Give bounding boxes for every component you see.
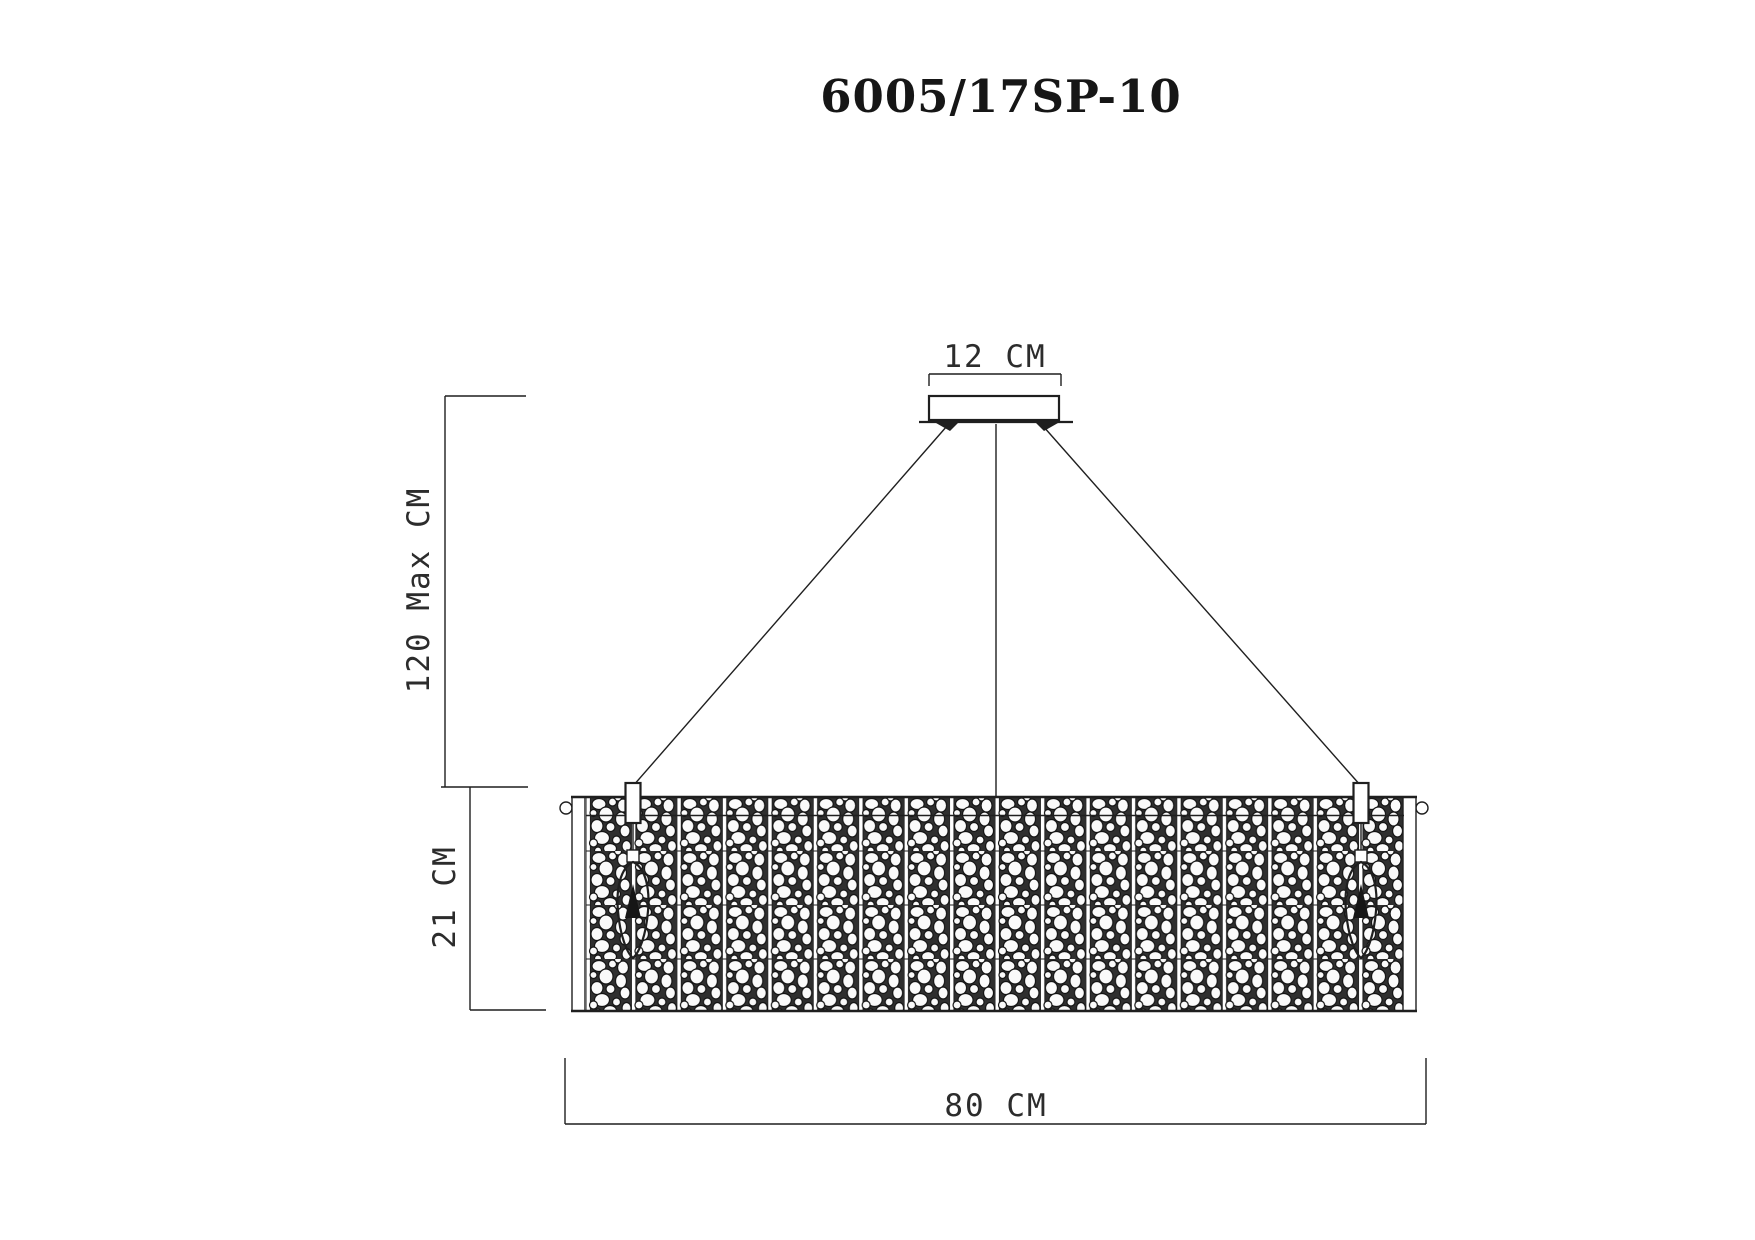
suspension-wires: [633, 424, 1361, 797]
suspension-height-dimension-line: [441, 396, 528, 787]
body-height-dimension: 21 CM: [427, 787, 546, 1010]
canopy-group: 12 CM: [919, 339, 1073, 431]
right-lamp-socket: [1355, 850, 1367, 862]
right-end-bar: [1403, 797, 1416, 1011]
technical-drawing: 6005/17SP-10 12 CM: [0, 0, 1755, 1240]
body-width-dimension-label: 80 CM: [944, 1088, 1047, 1124]
chandelier-body: [560, 783, 1428, 1011]
product-code-title: 6005/17SP-10: [820, 70, 1181, 123]
body-width-dimension: 80 CM: [565, 1058, 1426, 1124]
right-end-knob: [1416, 802, 1428, 814]
canopy-width-dimension-line: [929, 374, 1061, 386]
suspension-height-dimension-label: 120 Max CM: [401, 487, 437, 694]
crystal-mesh-panels: [586, 797, 1404, 1011]
suspension-height-dimension: 120 Max CM: [401, 396, 528, 787]
left-end-bar: [572, 797, 585, 1011]
canopy-width-dimension-label: 12 CM: [943, 339, 1046, 375]
left-suspension-wire: [633, 426, 947, 786]
right-wire-bracket: [1354, 783, 1369, 823]
body-height-dimension-label: 21 CM: [427, 845, 463, 948]
left-wire-bracket: [626, 783, 641, 823]
body-height-dimension-line: [470, 787, 546, 1010]
canopy-body: [929, 396, 1059, 420]
right-suspension-wire: [1043, 426, 1361, 786]
left-lamp-socket: [627, 850, 639, 862]
drawing-page: 6005/17SP-10 12 CM: [0, 0, 1755, 1240]
left-end-knob: [560, 802, 572, 814]
